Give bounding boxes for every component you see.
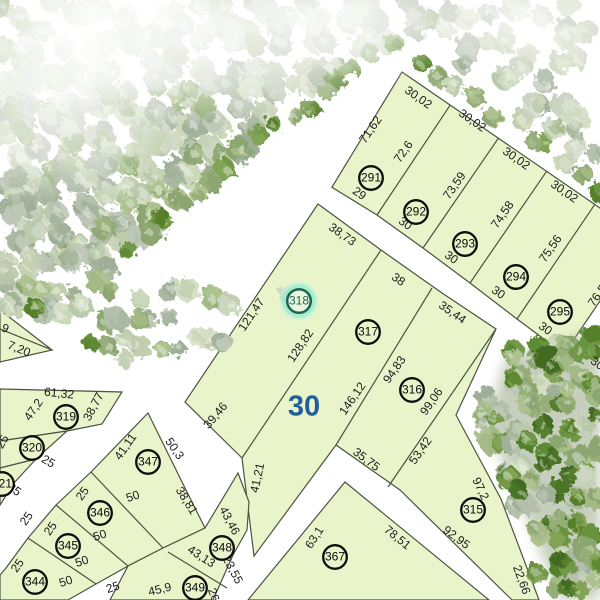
svg-text:294: 294 [506,270,526,284]
svg-text:30: 30 [288,391,320,423]
svg-text:345: 345 [58,539,78,553]
svg-text:349: 349 [185,581,205,595]
svg-text:346: 346 [90,506,110,520]
svg-text:295: 295 [550,305,570,319]
svg-text:321: 321 [0,477,12,491]
svg-text:291: 291 [361,171,381,185]
svg-text:317: 317 [358,325,378,339]
svg-text:316: 316 [402,383,422,397]
svg-text:320: 320 [22,441,42,455]
svg-text:319: 319 [56,410,76,424]
svg-text:347: 347 [138,455,158,469]
svg-text:367: 367 [325,550,345,564]
svg-text:293: 293 [455,237,475,251]
svg-text:348: 348 [212,541,232,555]
svg-text:292: 292 [406,205,426,219]
svg-text:318: 318 [289,294,309,308]
svg-text:315: 315 [463,503,483,517]
svg-text:344: 344 [25,575,45,589]
